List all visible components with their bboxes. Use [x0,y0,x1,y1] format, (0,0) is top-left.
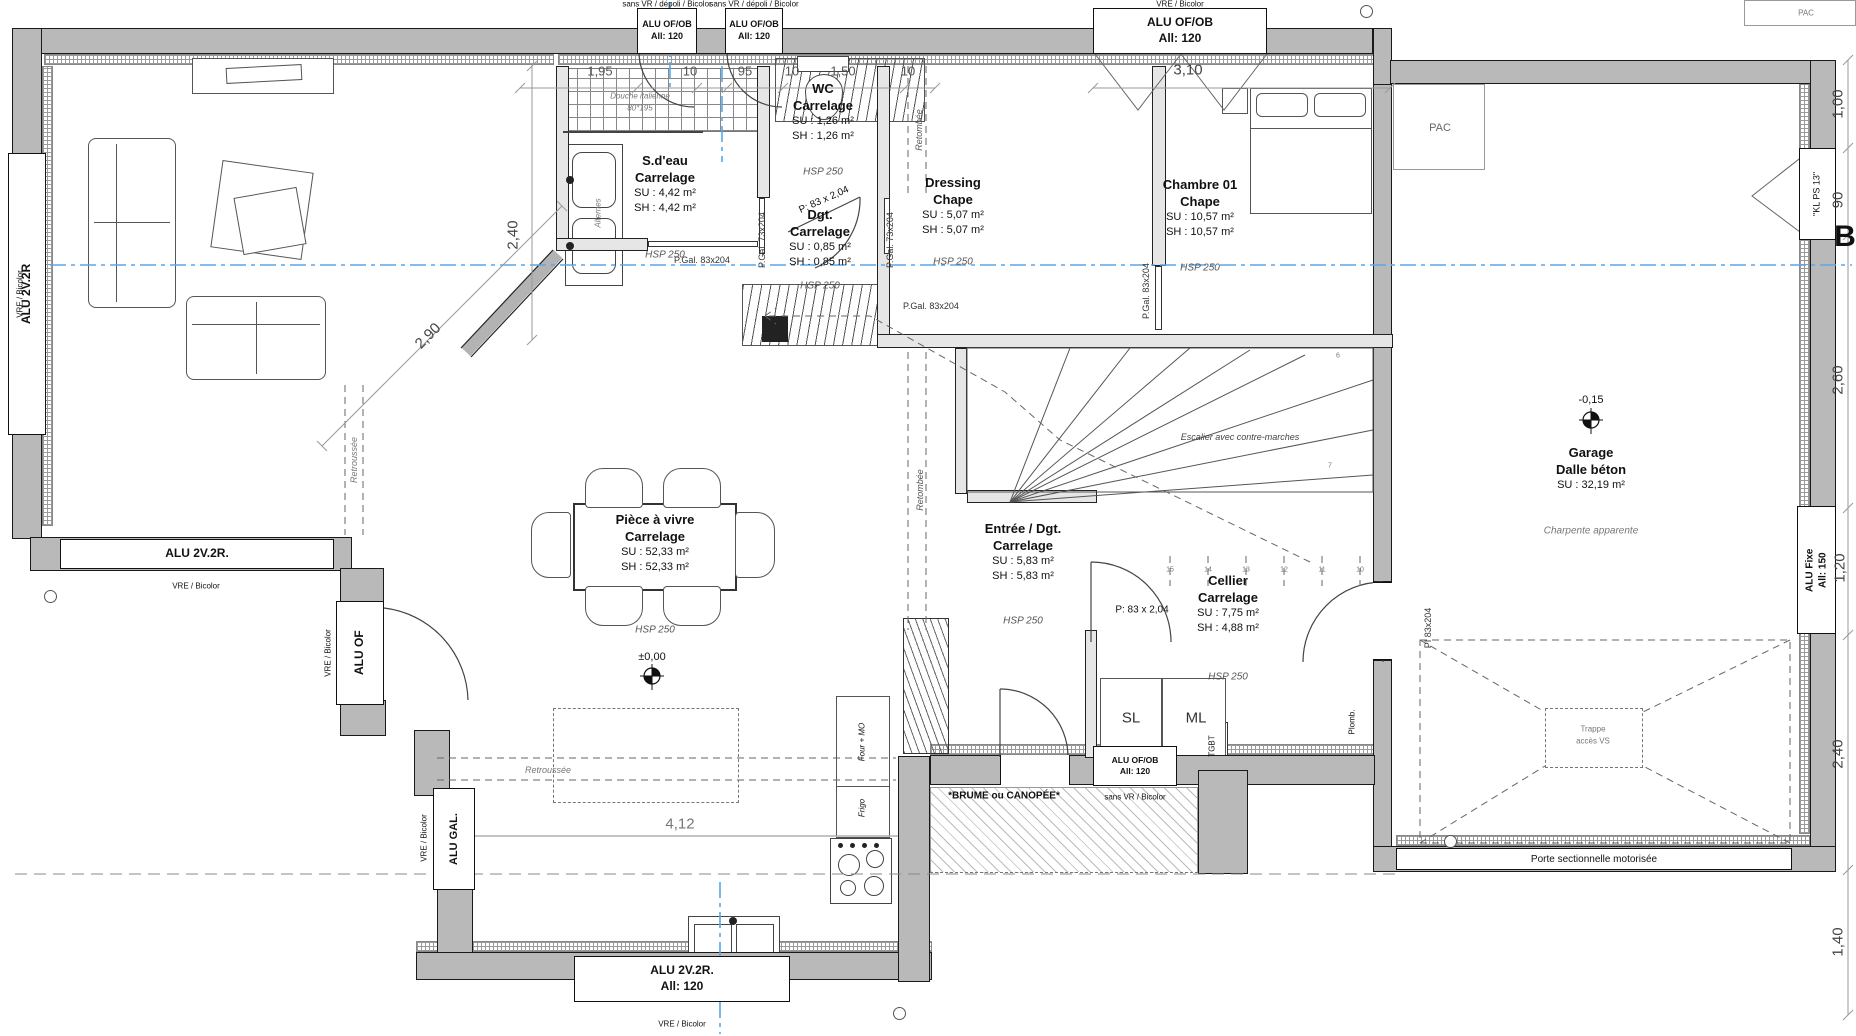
hsp: HSP 250 [1180,263,1220,274]
window-label: ALU 2V.2R. [650,963,714,979]
hsp: HSP 250 [635,625,675,636]
coffee-table [233,187,306,255]
partition [955,348,967,494]
entry-door-opening [1000,755,1070,785]
fridge-label: Frigo [858,799,867,817]
door-label: P.Gal. 83x204 [674,255,730,265]
pac-label: PAC [1429,122,1451,134]
window-allege: All: 120 [661,979,704,995]
dim-right-0: 1,00 [1830,89,1847,118]
wall [1373,84,1392,582]
sofa-seam [116,144,117,302]
wall-dot [893,1007,906,1020]
chair [663,586,721,626]
room-label-piece: Pièce à vivre Carrelage SU : 52,33 m² SH… [610,510,701,575]
window-label: ALU GAL. [447,813,461,865]
dim-right-2: 2,60 [1830,365,1847,394]
window-note: sans VR / dépoli / Bicolor [622,0,711,9]
tread-number: 13 [1242,567,1250,574]
wall [1198,770,1248,874]
hsp: HSP 250 [1208,672,1248,683]
wall [1390,60,1836,84]
plomb-label: Plomb. [1348,710,1357,735]
window-top1: ALU OF/OB All: 120 [637,8,697,54]
dim-top-0: 1,95 [587,64,612,79]
chair [531,512,571,578]
pillow [1314,93,1366,117]
dim-top-3: 10 [785,64,799,79]
window-note: VRE / Bicolor [172,582,220,591]
retombee-note: Retombée [915,469,925,511]
window-top3: ALU OF/OB All: 120 [1093,8,1267,54]
room-label-entree: Entrée / Dgt. Carrelage SU : 5,83 m² SH … [985,520,1062,583]
wall-dot [44,590,57,603]
stair-newel-post [762,316,788,342]
room-label-dgt: Dgt. Carrelage SU : 0,85 m² SH : 0,85 m² [789,206,851,269]
window-top2: ALU OF/OB All: 120 [725,8,783,54]
dim-top-4: 1,50 [830,64,855,79]
window-label: "KL PS 13" [1812,172,1824,216]
window-allege: All: 150 [1817,552,1830,588]
window-allege: All: 120 [651,31,683,43]
partition [757,66,770,198]
window-garage-fixe: ALU Fixe All: 150 [1797,506,1836,634]
chair [663,468,721,508]
shower-note-2: 80*195 [627,104,652,113]
door-label: P: 83 x 2,04 [1115,605,1168,616]
partition [1085,630,1097,758]
kitchen-island [553,708,739,803]
wall [898,756,930,982]
hsp: HSP 250 [800,281,840,292]
appliance-divider [836,786,890,787]
wall-dot [1444,835,1457,848]
window-note: VRE / Bicolor [658,1020,706,1029]
burner [866,850,884,868]
retroussee-note: Retroussée [349,437,359,483]
window-label: ALU OF/OB [1147,15,1213,31]
chair [735,512,775,578]
window-allege: All: 120 [1159,31,1202,47]
garage-door-label: Porte sectionnelle motorisée [1531,853,1657,866]
dim-top-5: 10 [901,64,915,79]
knob [850,843,855,848]
dim-right-1: 90 [1830,192,1847,209]
window-note: sans VR / dépoli / Bicolor [709,0,798,9]
window-label: ALU 2V.2R. [165,546,229,562]
window-alu-gal: ALU GAL. [433,788,475,890]
charpente-note: Charpente apparente [1544,526,1639,537]
wall [414,730,450,796]
sofa [88,138,176,308]
wall [340,700,386,736]
room-label-garage: Garage Dalle béton SU : 32,19 m² [1556,444,1626,493]
chair [585,468,643,508]
sofa-seam [256,302,257,374]
dim-top-1: 10 [683,64,697,79]
sofa-seam [94,222,170,223]
tread-number: 14 [1204,567,1212,574]
burner [838,854,860,876]
door-label: P.Gal. 73x204 [885,212,895,268]
terrace-label: *BRUME ou CANOPÉE* [948,791,1060,802]
pocket-door-leaf [1155,266,1162,330]
wall [1373,660,1392,848]
partition [556,66,569,242]
window-note: VRE / Bicolor [1156,0,1204,9]
faucet-dot [729,917,737,925]
door-label: P.Gal. 73x204 [757,212,767,268]
dim-top-2: 95 [738,64,752,79]
window-cellier-south: ALU OF/OB All: 120 [1093,746,1177,786]
window-note: VRE / Bicolor [16,270,25,318]
burner [840,880,856,896]
tgbt-label: TGBT [1208,735,1217,756]
dim-living-diag: 2,90 [412,320,445,353]
window-alu-of: ALU OF [336,601,384,705]
insulation-hatch [1396,835,1810,846]
tread-number: 7 [1328,463,1332,470]
partition [967,490,1097,503]
window-allege: All: 120 [738,31,770,43]
tread-number: 15 [1166,567,1174,574]
level-garage: -0,15 [1578,394,1603,406]
level-symbols [640,408,1603,690]
room-label-chambre: Chambre 01 Chape SU : 10,57 m² SH : 10,5… [1163,176,1237,239]
knob [874,843,879,848]
tread-number: 12 [1280,567,1288,574]
shower-note-1: Douche italienne [610,92,670,101]
door-label: PI 83x204 [1423,608,1433,649]
wall-dot [1360,5,1373,18]
room-label-cellier: Cellier Carrelage SU : 7,75 m² SH : 4,88… [1197,572,1259,635]
window-kitchen-south: ALU 2V.2R. All: 120 [574,956,790,1002]
pillow [1256,93,1308,117]
washer-label: SL [1122,710,1140,727]
window-label: ALU OF [352,631,368,676]
door-label: P.Gal. 83x204 [903,301,959,311]
chair [585,586,643,626]
axis-lines [50,2,1852,1034]
window-label: ALU Fixe [1804,548,1817,591]
window-label: ALU OF/OB [1112,755,1159,766]
nightstand [1222,88,1248,114]
knob [862,843,867,848]
tread-number: 11 [1318,567,1325,574]
dim-sdeau-height: 2,40 [505,220,522,249]
pac-corner-label: PAC [1798,9,1814,18]
dryer-label: ML [1186,710,1207,727]
insulation-hatch [416,941,932,952]
stairs-note: Escalier avec contre-marches [1181,432,1300,442]
window-note: VRE / Bicolor [324,629,333,677]
wardrobe [903,618,949,754]
retroussee-note: Retroussée [525,765,571,775]
window-allege: All: 120 [1120,766,1150,777]
room-label-wc: WC Carrelage SU : 1,26 m² SH : 1,26 m² [792,80,854,143]
tread-number: 6 [1336,353,1340,360]
level-ground: ±0,00 [638,651,665,663]
knob [838,843,843,848]
oven-label: Four + MO [858,723,867,761]
trappe-label-2: accès VS [1576,737,1610,746]
garage-sectional-door: Porte sectionnelle motorisée [1396,848,1792,870]
partition [877,334,1393,348]
chamfer-wall [466,254,558,352]
faucet-dot [566,176,574,184]
window-note: sans VR / Bicolor [1104,793,1165,802]
dim-right-3: 1,20 [1832,553,1849,582]
dim-right-5: 1,40 [1830,927,1847,956]
blanket-line [1250,128,1372,129]
door-label: P.Gal. 83x204 [1141,263,1151,319]
retombee-note: Retombée [914,109,924,151]
room-label-dressing: Dressing Chape SU : 5,07 m² SH : 5,07 m² [922,174,984,237]
hsp: HSP 250 [1003,616,1043,627]
tread-number: 10 [1356,567,1364,574]
trappe-label-1: Trappe [1580,725,1605,734]
window-note: VRE / Bicolor [420,814,429,862]
hsp: HSP 250 [933,257,973,268]
window-southwest: ALU 2V.2R. [60,539,334,569]
faucet-dot [566,242,574,250]
alternes-note: Alternes [594,198,603,227]
hsp: HSP 250 [803,167,843,178]
section-marker-b: B [1834,220,1856,254]
dim-chambre-width: 3,10 [1173,62,1202,79]
garage-door-opening-pi [1373,582,1392,660]
window-label: ALU OF/OB [729,19,779,31]
stair-winder-lines [967,348,1373,502]
window-left-tall: ALU 2V.2R [8,153,46,435]
floor-plan: ALU OF/OB All: 120 ALU OF/OB All: 120 AL… [0,0,1856,1036]
room-label-sdeau: S.d'eau Carrelage SU : 4,42 m² SH : 4,42… [634,152,696,215]
window-label: ALU OF/OB [642,19,692,31]
dim-right-4: 2,40 [1830,739,1847,768]
pocket-door-leaf [648,241,758,247]
burner [864,876,884,896]
dim-kitchen-width: 4,12 [665,816,694,833]
